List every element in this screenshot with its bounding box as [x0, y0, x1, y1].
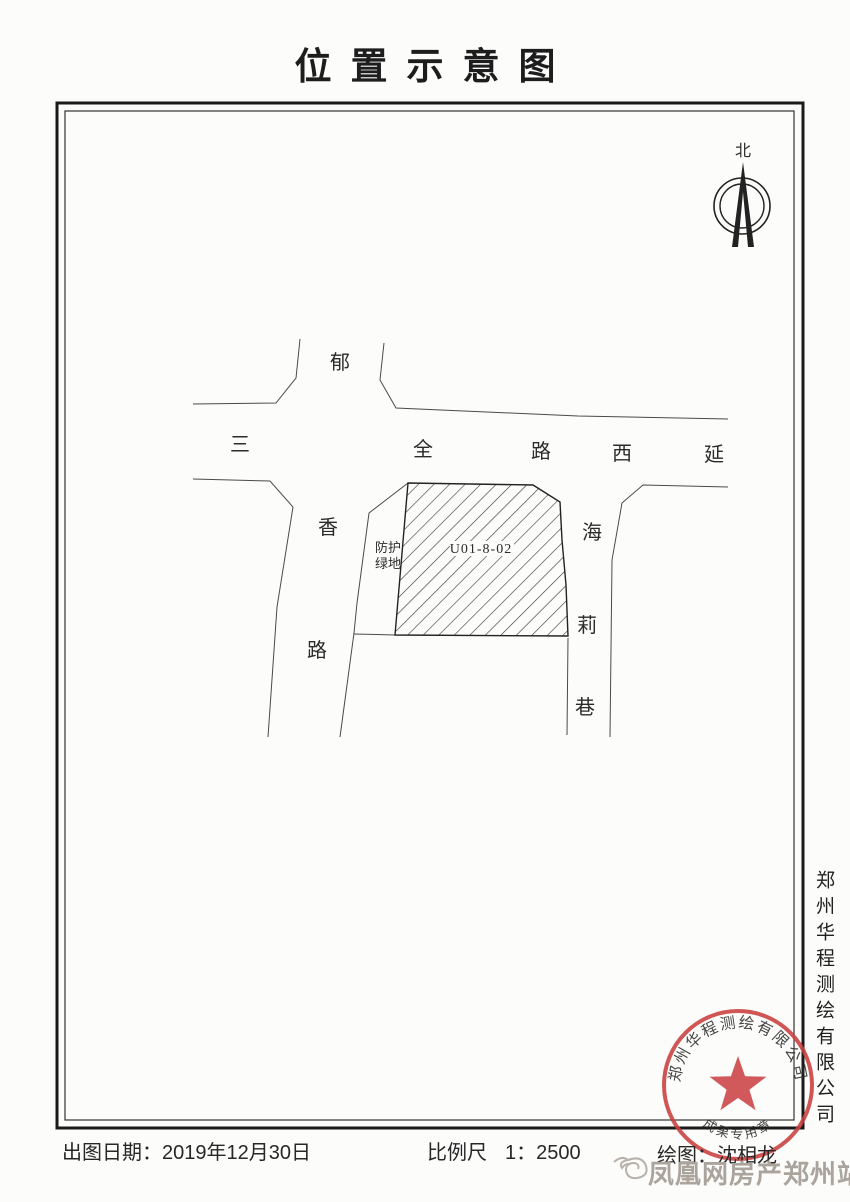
lane-east-edge [610, 485, 728, 737]
plot-date-value: 2019年12月30日 [162, 1142, 311, 1164]
scale-value: 1：2500 [505, 1142, 581, 1164]
lane-west-edge [567, 638, 568, 735]
plot-date-label: 出图日期： [62, 1142, 162, 1164]
road-edge-east-top [380, 343, 728, 419]
road-label-xiang: 香 [318, 516, 338, 539]
greenbelt-bottom-edge [354, 634, 395, 635]
road-label-xi: 西 [612, 443, 632, 465]
parcel-label: U01-8-02 [450, 542, 512, 557]
road-edge-west-top [193, 339, 300, 404]
seal-star-icon [710, 1056, 767, 1110]
location-sketch-document: 位置示意图 U01-8-02 郁 三 [0, 0, 850, 1202]
lane-label-xiang2: 巷 [575, 696, 595, 719]
road-label-yu: 郁 [330, 351, 350, 374]
lane-label-hai: 海 [582, 521, 602, 544]
green-space-label: 防护 绿地 [375, 540, 401, 571]
map-canvas: U01-8-02 郁 三 全 路 西 延 香 路 海 莉 巷 防护 绿地 北 [0, 0, 850, 1202]
watermark-text: 凤凰网房产郑州站 [648, 1154, 850, 1191]
road-label-quan: 全 [413, 438, 433, 461]
road-label-san: 三 [230, 434, 250, 456]
road-edge-west-bottom [193, 479, 293, 737]
north-compass-icon: 北 [714, 142, 770, 247]
lane-label-li: 莉 [577, 614, 597, 637]
north-label: 北 [735, 142, 751, 160]
road-label-yan: 延 [704, 443, 724, 466]
green-space-line1: 防护 [375, 540, 401, 555]
scale-label: 比例尺 [427, 1142, 487, 1164]
parcel-polygon [395, 483, 568, 636]
road-label-lu: 路 [531, 440, 551, 463]
plot-date: 出图日期：2019年12月30日 [62, 1136, 311, 1165]
green-space-line2: 绿地 [375, 556, 401, 571]
road-label-lu2: 路 [307, 639, 327, 662]
company-name-vertical: 郑州华程测绘有限公司 [810, 870, 837, 1130]
map-scale: 比例尺1：2500 [427, 1136, 581, 1165]
